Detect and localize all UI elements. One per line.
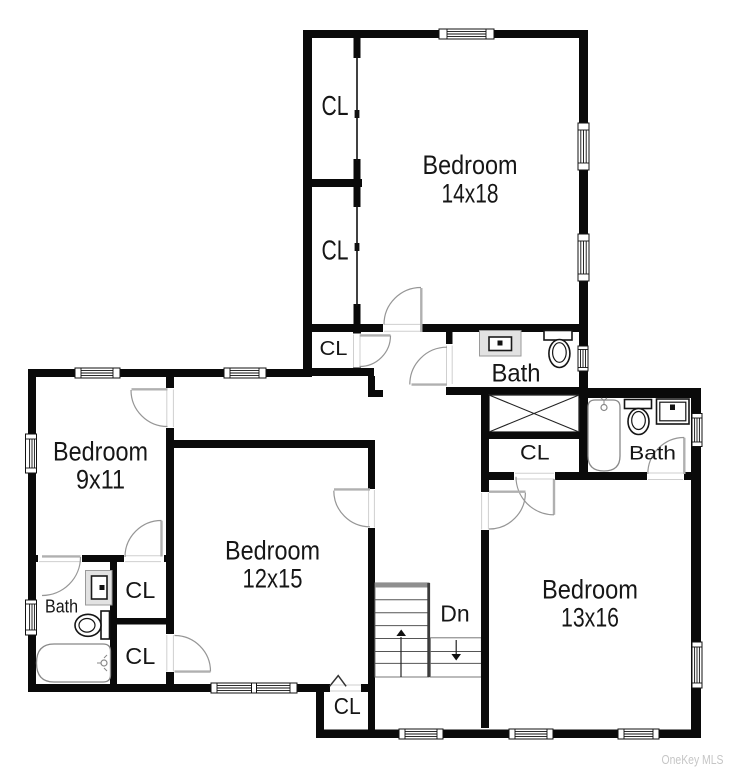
svg-text:Bath: Bath — [492, 360, 541, 388]
svg-text:14x18: 14x18 — [442, 179, 499, 209]
svg-text:Bath: Bath — [629, 443, 676, 465]
svg-text:CL: CL — [125, 577, 155, 603]
svg-text:Dn: Dn — [440, 601, 469, 627]
svg-text:13x16: 13x16 — [561, 603, 619, 633]
svg-text:CL: CL — [322, 90, 349, 121]
svg-text:CL: CL — [320, 338, 348, 360]
svg-text:CL: CL — [322, 235, 349, 266]
svg-text:12x15: 12x15 — [243, 564, 303, 594]
svg-text:Bedroom: Bedroom — [542, 575, 638, 605]
svg-text:Bath: Bath — [45, 597, 78, 617]
svg-text:CL: CL — [125, 643, 155, 669]
svg-text:9x11: 9x11 — [76, 465, 125, 495]
svg-text:Bedroom: Bedroom — [423, 150, 518, 180]
svg-text:OneKey MLS: OneKey MLS — [662, 752, 724, 767]
svg-text:CL: CL — [334, 693, 361, 719]
svg-text:Bedroom: Bedroom — [53, 437, 148, 467]
svg-text:Bedroom: Bedroom — [225, 536, 320, 566]
svg-text:CL: CL — [520, 442, 550, 465]
